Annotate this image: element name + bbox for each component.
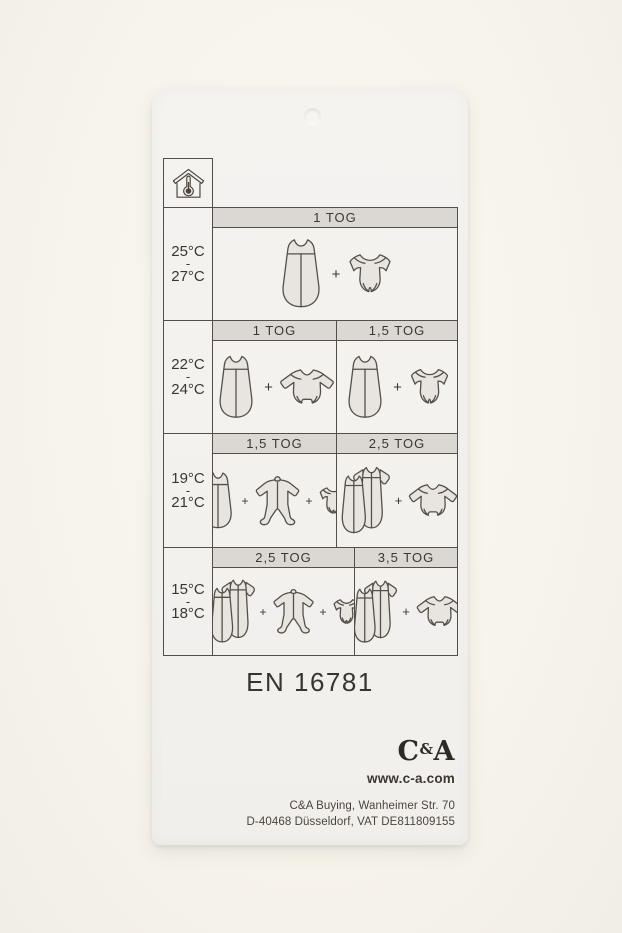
temp-to: 21°C	[171, 494, 205, 511]
tog-cell: 1,5 TOG +	[336, 321, 457, 433]
bodysuit-long-icon	[278, 368, 336, 406]
tog-cell: 1,5 TOG ++	[213, 434, 336, 547]
room-temperature-cell	[163, 158, 213, 207]
temp-dash: -	[186, 373, 190, 380]
plus-sign: +	[332, 266, 341, 283]
temperature-range: 22°C - 24°C	[164, 321, 213, 433]
standard-number: EN 16781	[152, 667, 468, 698]
plus-sign: +	[320, 605, 327, 619]
tag-hole-punch	[304, 108, 321, 125]
hang-tag: 25°C - 27°C 1 TOG + 22°C - 24°C 1 TOG	[152, 87, 468, 845]
tog-cell: 1 TOG +	[213, 321, 336, 433]
tog-rating-label: 1,5 TOG	[213, 434, 336, 454]
temp-to: 18°C	[171, 605, 205, 622]
tog-cell: 3,5 TOG +	[354, 548, 457, 655]
garment-combination: +	[337, 454, 457, 547]
ca-logo: C&A	[247, 738, 456, 765]
plus-sign: +	[306, 494, 313, 508]
house-thermometer-icon	[170, 165, 207, 202]
temperature-range: 19°C - 21°C	[164, 434, 213, 547]
address-line-2: D-40468 Düsseldorf, VAT DE811809155	[247, 814, 456, 830]
company-address: C&A Buying, Wanheimer Str. 70 D-40468 Dü…	[247, 798, 456, 830]
brand-block: C&A www.c-a.com C&A Buying, Wanheimer St…	[247, 738, 456, 830]
logo-letter-a: A	[434, 736, 455, 767]
table-row: 15°C - 18°C 2,5 TOG ++ 3,5 TOG +	[163, 547, 458, 656]
tog-cell: 2,5 TOG ++	[213, 548, 354, 655]
garment-combination: +	[355, 568, 457, 655]
tog-rating-label: 3,5 TOG	[355, 548, 457, 568]
plus-sign: +	[395, 493, 403, 508]
tog-cell: 2,5 TOG +	[336, 434, 457, 547]
double-sleeping-bag-icon	[355, 577, 397, 647]
bodysuit-short-icon	[345, 252, 395, 296]
garment-combination: +	[213, 228, 457, 320]
tog-cell: 1 TOG +	[213, 208, 457, 320]
table-row: 25°C - 27°C 1 TOG +	[163, 207, 458, 320]
temp-dash: -	[186, 260, 190, 267]
plus-sign: +	[402, 604, 410, 619]
sleeping-bag-icon	[213, 470, 237, 532]
bodysuit-long-icon	[407, 483, 457, 518]
sleepsuit-icon	[253, 475, 302, 527]
plus-sign: +	[241, 494, 248, 508]
temperature-range: 15°C - 18°C	[164, 548, 213, 655]
plus-sign: +	[393, 379, 402, 396]
sleepsuit-icon	[271, 588, 316, 635]
sleeping-bag-icon	[213, 353, 259, 422]
garment-combination: +	[213, 341, 336, 433]
tog-rating-label: 2,5 TOG	[213, 548, 354, 568]
double-sleeping-bag-icon	[337, 463, 390, 538]
logo-ampersand: &	[420, 740, 434, 758]
tog-rating-label: 2,5 TOG	[337, 434, 457, 454]
tog-temperature-table: 25°C - 27°C 1 TOG + 22°C - 24°C 1 TOG	[163, 158, 458, 656]
photo-background: { "tag": { "plus": "+", "rows": [ { "tem…	[0, 0, 622, 933]
tog-rating-label: 1 TOG	[213, 321, 336, 341]
garment-combination: +	[337, 341, 457, 433]
bodysuit-short-icon	[407, 367, 452, 407]
temp-to: 24°C	[171, 381, 205, 398]
tog-rating-label: 1,5 TOG	[337, 321, 457, 341]
temperature-range: 25°C - 27°C	[164, 208, 213, 320]
temp-to: 27°C	[171, 268, 205, 285]
sleeping-bag-icon	[342, 353, 388, 422]
address-line-1: C&A Buying, Wanheimer Str. 70	[247, 798, 456, 814]
tog-rating-label: 1 TOG	[213, 208, 457, 228]
bodysuit-short-icon	[317, 486, 336, 516]
table-row: 22°C - 24°C 1 TOG + 1,5 TOG +	[163, 320, 458, 433]
temp-dash: -	[186, 487, 190, 494]
website-url: www.c-a.com	[247, 771, 456, 786]
logo-letter-c: C	[398, 736, 420, 767]
bodysuit-long-icon	[415, 595, 457, 628]
bodysuit-short-icon	[331, 598, 354, 626]
table-row: 19°C - 21°C 1,5 TOG ++ 2,5 TOG +	[163, 433, 458, 547]
double-sleeping-bag-icon	[213, 576, 255, 647]
plus-sign: +	[264, 379, 273, 396]
garment-combination: ++	[213, 454, 336, 547]
temp-dash: -	[186, 598, 190, 605]
sleeping-bag-icon	[275, 236, 327, 312]
plus-sign: +	[259, 605, 266, 619]
garment-combination: ++	[213, 568, 354, 655]
